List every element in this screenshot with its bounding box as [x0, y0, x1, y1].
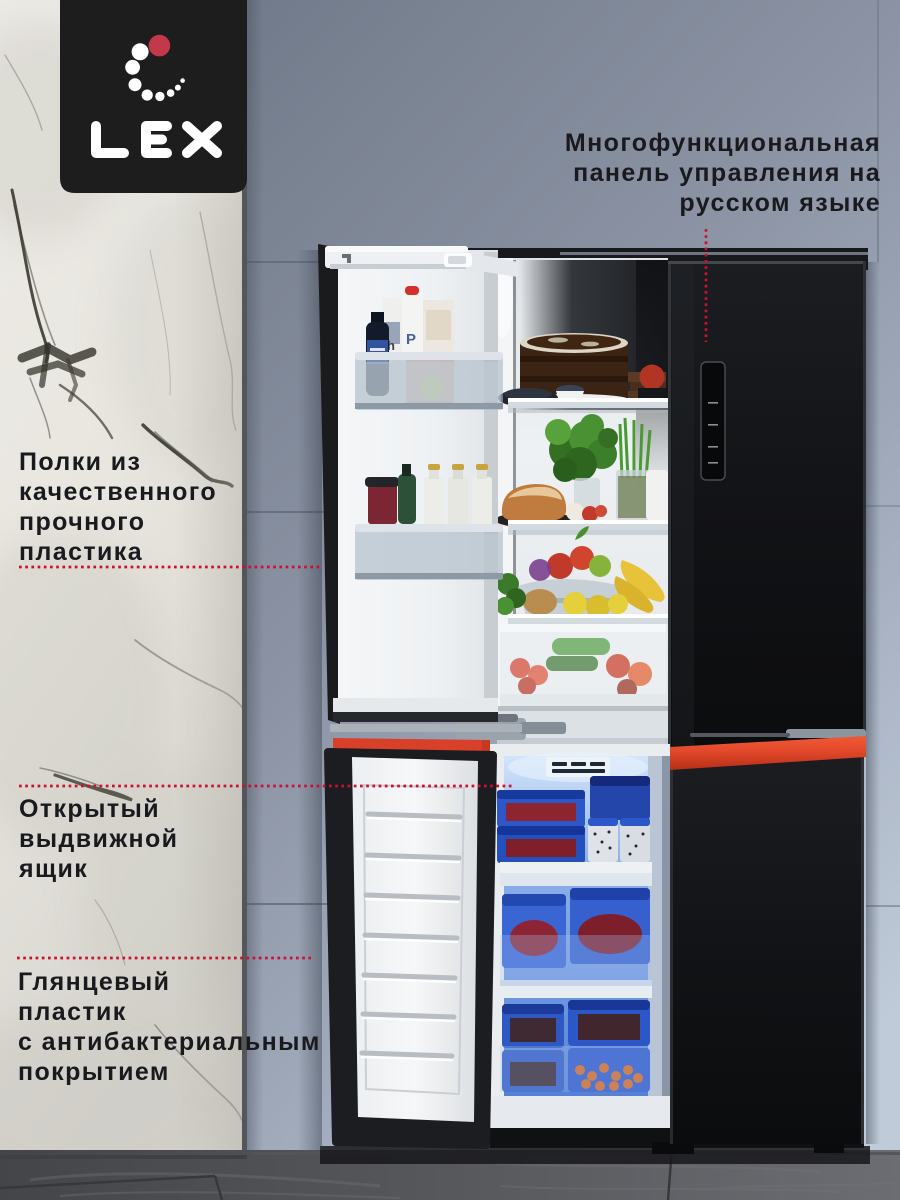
svg-text:русском языке: русском языке: [679, 189, 881, 217]
svg-text:панель управления на: панель управления на: [573, 159, 881, 187]
svg-text:Многофункциональная: Многофункциональная: [565, 129, 881, 157]
svg-text:Р: Р: [406, 331, 417, 348]
svg-text:ящик: ящик: [18, 855, 88, 883]
svg-text:покрытием: покрытием: [18, 1058, 170, 1086]
svg-text:прочного: прочного: [19, 508, 145, 536]
svg-text:пластик: пластик: [18, 998, 127, 1026]
svg-text:качественного: качественного: [19, 478, 217, 506]
svg-text:выдвижной: выдвижной: [19, 825, 178, 853]
svg-text:Полки из: Полки из: [19, 448, 141, 476]
svg-text:пластика: пластика: [19, 538, 143, 566]
svg-text:с антибактериальным: с антибактериальным: [18, 1028, 321, 1056]
svg-text:Глянцевый: Глянцевый: [18, 968, 170, 996]
svg-text:Открытый: Открытый: [19, 795, 160, 823]
